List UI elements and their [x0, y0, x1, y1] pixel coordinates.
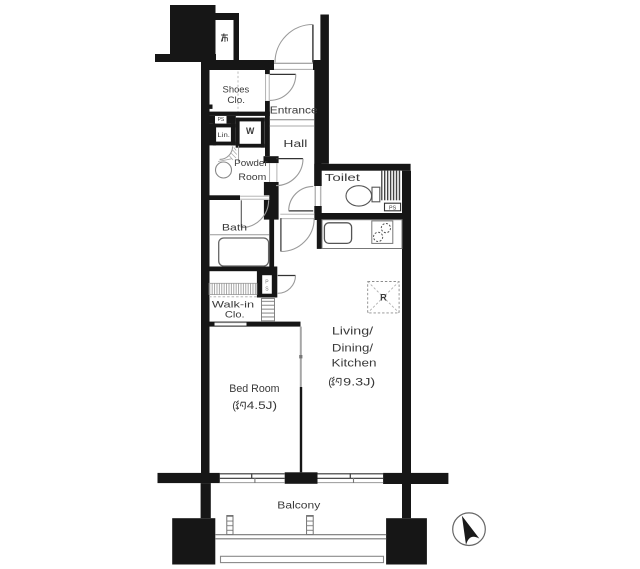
svg-text:Bed Room: Bed Room	[229, 383, 279, 395]
svg-text:Bath: Bath	[222, 222, 247, 233]
svg-text:(: (	[232, 400, 236, 412]
svg-text:Toilet: Toilet	[325, 173, 361, 184]
svg-text:Shoes: Shoes	[223, 84, 250, 95]
svg-text:Lin.: Lin.	[217, 132, 230, 139]
svg-text:(: (	[328, 376, 332, 388]
svg-text:R: R	[380, 293, 387, 303]
svg-text:Hall: Hall	[283, 139, 307, 150]
svg-text:PS: PS	[218, 117, 225, 123]
svg-text:Entrance: Entrance	[270, 105, 318, 116]
svg-text:Clo.: Clo.	[227, 95, 245, 106]
svg-text:Dining/: Dining/	[332, 342, 374, 354]
svg-text:Room: Room	[238, 172, 266, 183]
svg-text:Clo.: Clo.	[225, 310, 245, 321]
svg-text:Kitchen: Kitchen	[332, 358, 377, 370]
svg-text:9.3J): 9.3J)	[343, 376, 375, 388]
svg-text:4.5J): 4.5J)	[247, 400, 278, 412]
svg-text:W: W	[246, 126, 255, 136]
svg-text:PS: PS	[389, 206, 397, 212]
svg-text:Living/: Living/	[332, 325, 374, 337]
svg-text:Powder: Powder	[234, 158, 268, 169]
svg-text:Balcony: Balcony	[277, 500, 320, 511]
